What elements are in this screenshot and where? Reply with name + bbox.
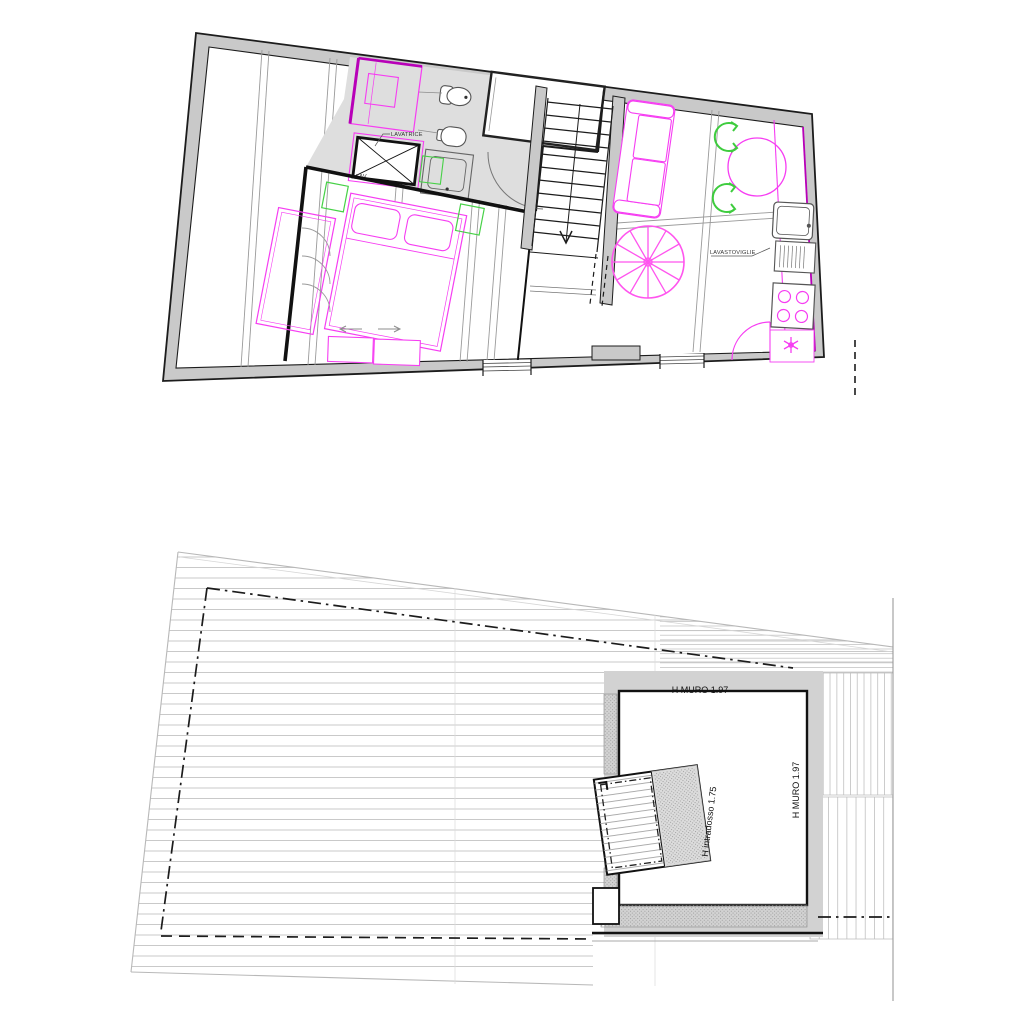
roof-plan: H intradosso 1.75 H MURO 1.97 H MURO 1.9… bbox=[131, 552, 893, 1001]
upper-floor-plan: LAVATRICE LAV. bbox=[163, 33, 855, 398]
architectural-drawing: LAVATRICE LAV. bbox=[0, 0, 1024, 1024]
roof-stair-box bbox=[594, 765, 710, 875]
stove bbox=[771, 283, 815, 329]
dishwasher-label: LAVASTOVIGLIE bbox=[710, 250, 756, 256]
window-2 bbox=[660, 353, 704, 369]
dishwasher bbox=[774, 241, 816, 273]
bench-seats bbox=[328, 336, 421, 365]
wall-height-label-top: H MURO 1.97 bbox=[672, 685, 729, 695]
wall-stipple-bottom bbox=[601, 905, 807, 927]
wall-height-label-right: H MURO 1.97 bbox=[791, 762, 801, 819]
window-1 bbox=[483, 359, 531, 376]
kitchen-sink bbox=[772, 202, 814, 240]
plan-sheet: LAVATRICE LAV. bbox=[0, 0, 1024, 1024]
double-bed bbox=[325, 193, 467, 351]
washing-machine-label: LAVATRICE bbox=[391, 132, 423, 138]
spiral-staircase bbox=[612, 226, 684, 298]
vertical-hatch-strip-upper bbox=[818, 673, 893, 795]
wall-stipple-left-upper bbox=[604, 694, 617, 774]
room-notch bbox=[593, 888, 619, 924]
